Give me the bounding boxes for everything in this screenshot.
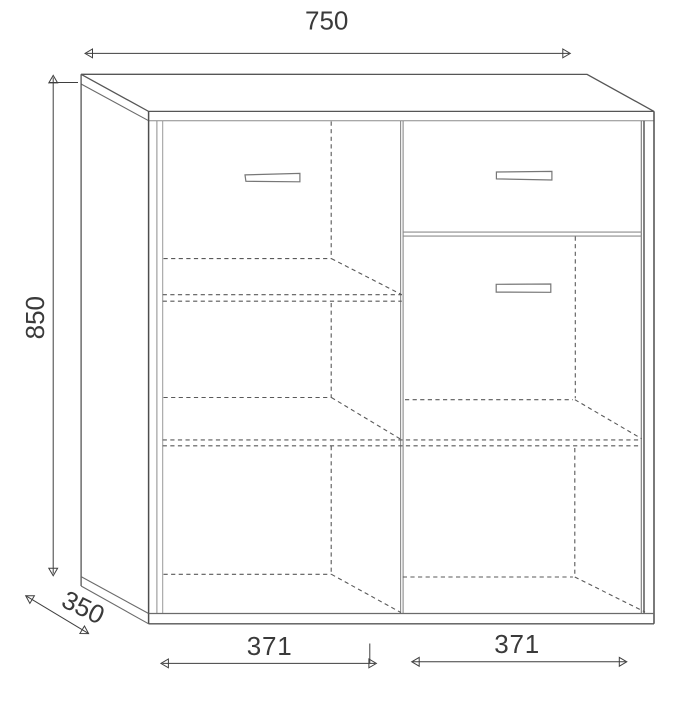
svg-text:750: 750 bbox=[305, 6, 348, 36]
svg-text:371: 371 bbox=[247, 631, 293, 661]
svg-text:850: 850 bbox=[20, 296, 50, 339]
svg-text:371: 371 bbox=[494, 629, 540, 659]
